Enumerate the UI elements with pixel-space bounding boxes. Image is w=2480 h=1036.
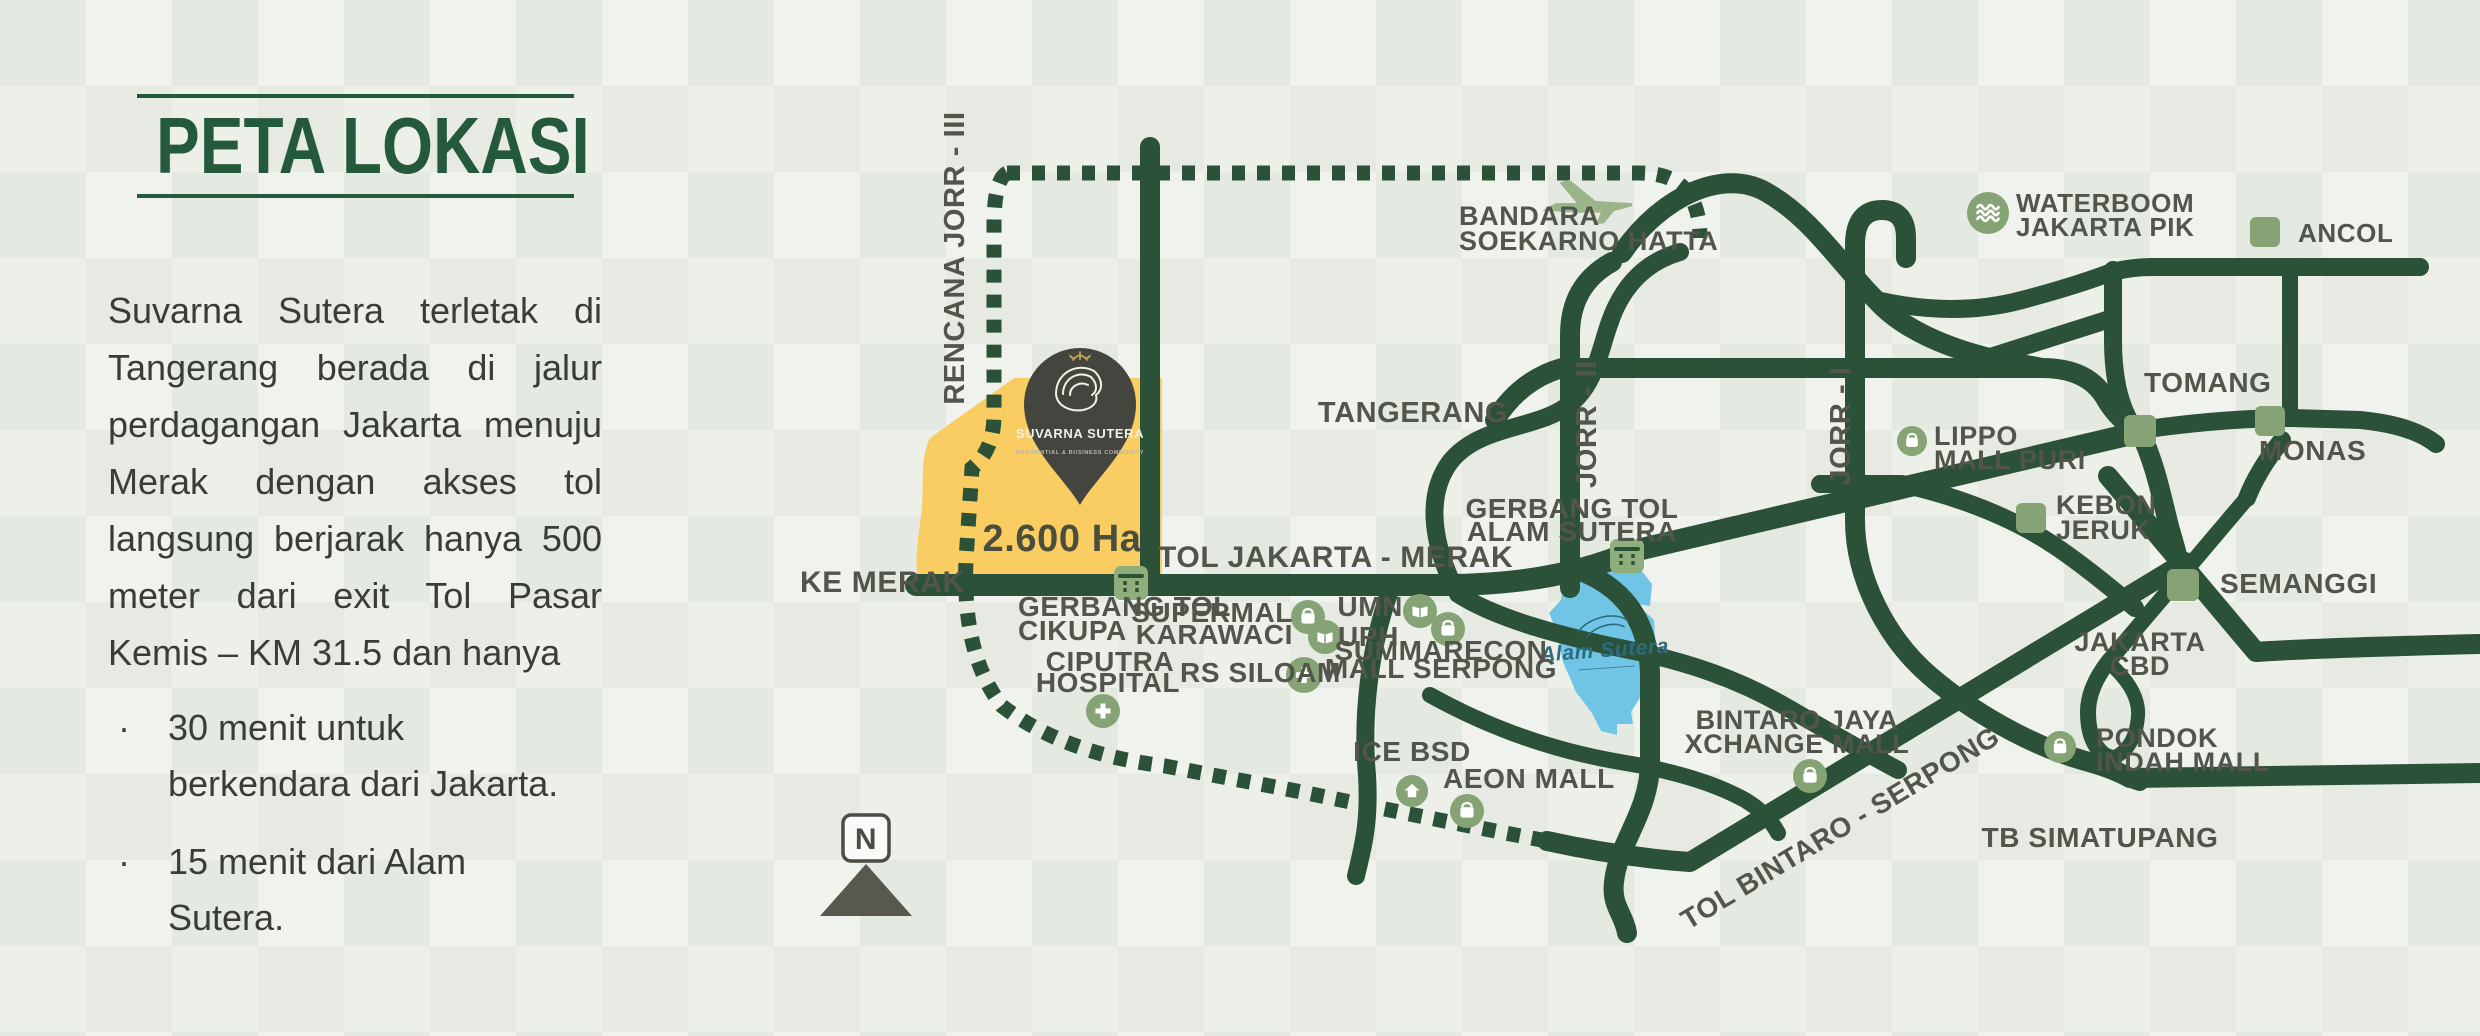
tomang-label: TOMANG xyxy=(2144,367,2272,398)
xchange-mall-label: XCHANGE MALL xyxy=(1685,729,1910,759)
tangerang-label: TANGERANG xyxy=(1318,397,1508,429)
ciputra-hospital-cross-icon xyxy=(1086,694,1120,728)
location-map: SUVARNA SUTERARESIDENTIAL & BUSINESS COM… xyxy=(0,0,2480,1036)
ke-merak-label: KE MERAK xyxy=(800,566,965,599)
road xyxy=(1855,210,1906,470)
semanggi-marker xyxy=(2167,569,2199,601)
peta-lokasi-poster: PETA LOKASI Suvarna Sutera terletak diTa… xyxy=(0,0,2480,1036)
road xyxy=(2113,270,2132,425)
aeon-mall-bag-icon xyxy=(1450,794,1484,828)
waterboom-waves-icon xyxy=(1967,192,2009,234)
monas-marker xyxy=(2255,406,2285,436)
tb-simatupang-label: TB SIMATUPANG xyxy=(1982,822,2219,853)
cbd-label: CBD xyxy=(2110,651,2170,681)
monas-label: MONAS xyxy=(2259,435,2366,466)
hospital-label: HOSPITAL xyxy=(1036,667,1180,698)
umn-label: UMN xyxy=(1337,591,1403,622)
soekarno-hatta-label: SOEKARNO HATTA xyxy=(1459,226,1718,256)
semanggi-label: SEMANGGI xyxy=(2220,568,2377,599)
jorr-i-label: JORR - I xyxy=(1825,366,1857,485)
ancol-label: ANCOL xyxy=(2298,218,2393,248)
pin-title: SUVARNA SUTERA xyxy=(1016,426,1144,441)
ice-bsd-house-icon xyxy=(1396,775,1428,807)
lippo-mall-puri-bag-icon xyxy=(1897,426,1927,456)
bintaro-jaya-xchange-mall-bag-icon xyxy=(1793,759,1827,793)
pin-tagline: RESIDENTIAL & BUSINESS COMMUNITY xyxy=(1016,450,1144,456)
jeruk-label: JERUK xyxy=(2056,515,2151,545)
umn-book-icon xyxy=(1403,594,1437,628)
pondok-indah-mall-bag-icon xyxy=(2044,731,2076,763)
north-letter: N xyxy=(855,823,877,856)
jorr-ii-label: JORR - II xyxy=(1571,360,1603,488)
mall-puri-label: MALL PURI xyxy=(1934,445,2086,475)
alam-sutera-label: ALAM SUTERA xyxy=(1467,516,1677,547)
indah-mall-label: INDAH MALL xyxy=(2096,747,2270,777)
aeon-mall-label: AEON MALL xyxy=(1443,763,1615,794)
rencana-jorr-iii-label: RENCANA JORR - III xyxy=(939,111,971,404)
ancol-marker xyxy=(2250,217,2280,247)
tol-jakarta-merak-label: TOL JAKARTA - MERAK xyxy=(1158,541,1513,574)
mall-serpong-label: MALL SERPONG xyxy=(1325,653,1557,684)
jakarta-pik-label: JAKARTA PIK xyxy=(2016,212,2195,242)
north-compass: N xyxy=(820,815,912,916)
north-triangle xyxy=(820,864,912,916)
kebon-jeruk-marker xyxy=(2016,503,2046,533)
cikupa-label: CIKUPA xyxy=(1018,615,1127,646)
karawaci-label: KARAWACI xyxy=(1136,619,1293,650)
tomang-marker xyxy=(2124,415,2156,447)
rs-siloam-label: RS SILOAM xyxy=(1180,657,1341,688)
2-600-ha-label: 2.600 Ha xyxy=(982,518,1141,560)
